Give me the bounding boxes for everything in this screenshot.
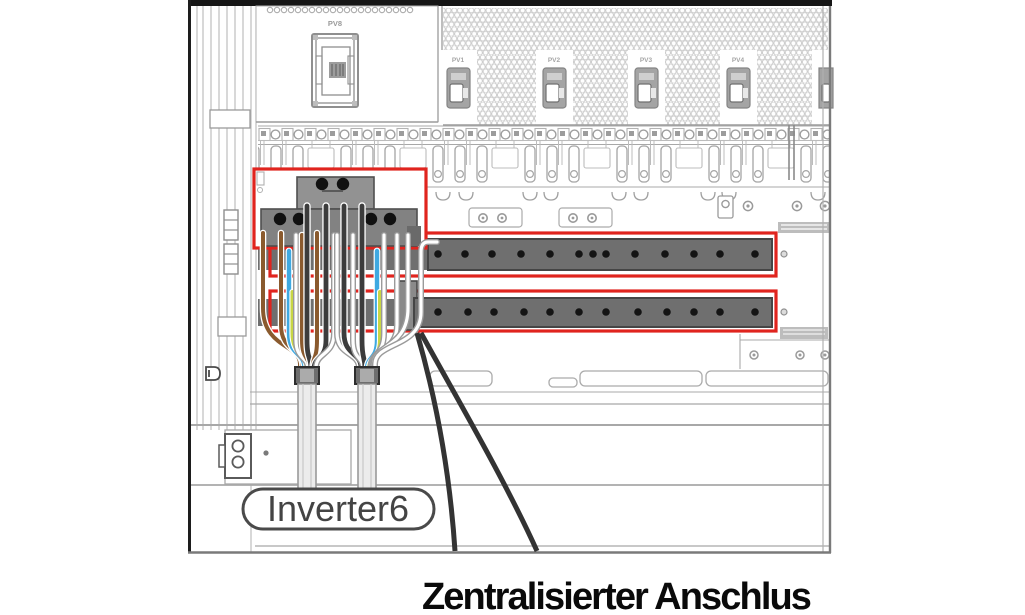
svg-text:PV8: PV8 xyxy=(328,19,342,28)
svg-text:PV1: PV1 xyxy=(452,57,465,64)
svg-text:PV2: PV2 xyxy=(548,57,561,64)
svg-text:PV3: PV3 xyxy=(640,57,653,64)
svg-text:PV4: PV4 xyxy=(732,57,745,64)
svg-text:Zentralisierter Anschlus: Zentralisierter Anschlus xyxy=(422,576,811,615)
svg-text:Inverter6: Inverter6 xyxy=(267,488,409,529)
